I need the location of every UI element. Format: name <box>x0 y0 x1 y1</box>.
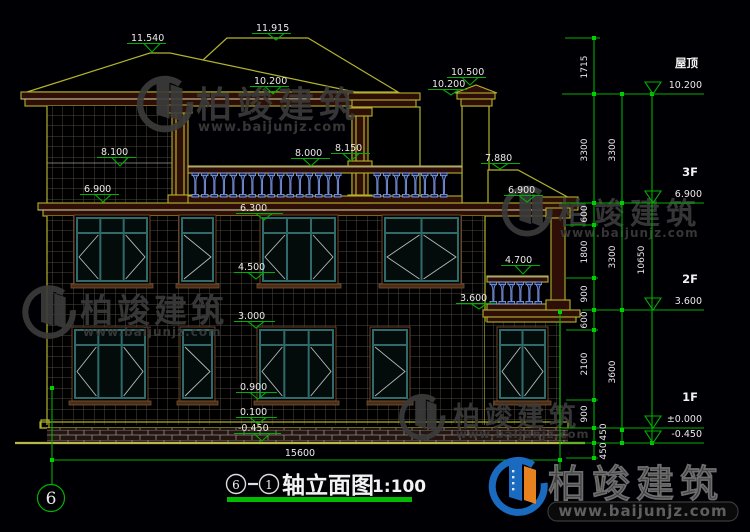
third-floor-band <box>38 203 578 216</box>
dimension-value: 1715 <box>580 56 590 79</box>
baluster <box>287 173 294 197</box>
dimension-tick <box>620 92 624 96</box>
logo-building-icon <box>509 459 522 501</box>
dimension-value: 450 <box>599 423 609 440</box>
dimension-value: 900 <box>580 405 590 422</box>
floor-elevation: -0.450 <box>671 429 702 440</box>
dimension-tick <box>592 36 596 40</box>
baluster <box>221 173 228 197</box>
dimension-value: 600 <box>580 311 590 328</box>
baluster <box>316 173 323 197</box>
drawing-title: 6 1 轴立面图 1:100 <box>227 472 427 502</box>
baluster <box>202 173 209 197</box>
window <box>367 327 413 405</box>
cad-elevation-screenshot: 柏竣建筑 www.baijunjz.com 柏竣建筑 www.baijunjz.… <box>0 0 750 532</box>
baluster <box>259 173 266 197</box>
dimension-tick <box>592 441 596 445</box>
dimension-value: 3300 <box>608 245 618 268</box>
floor-elevation: 6.900 <box>675 189 702 200</box>
floor-name: 2F <box>682 272 698 286</box>
dimension-tick <box>592 223 596 227</box>
floor-name: 3F <box>682 165 698 179</box>
dimension-value: 900 <box>580 285 590 302</box>
dimension-value: 3300 <box>608 138 618 161</box>
dimension-tick <box>620 201 624 205</box>
watermark-url: www.baijunjz.com <box>560 226 699 240</box>
baluster <box>278 173 285 197</box>
title-text: 轴立面图 <box>282 472 374 499</box>
floor-level-markers: 屋顶10.2003F6.9002F3.6001F±0.000-0.450 <box>638 56 704 443</box>
floor-elevation: 10.200 <box>669 80 702 91</box>
elevation-value: 10.500 <box>451 67 484 78</box>
dimension-tick <box>592 201 596 205</box>
elevation-value: 3.000 <box>238 311 265 322</box>
elevation-value: 7.880 <box>485 153 512 164</box>
window <box>379 215 464 288</box>
dimension-tick <box>592 426 596 430</box>
dimension-tick <box>50 386 54 390</box>
window <box>494 327 551 405</box>
window-sill <box>177 401 218 405</box>
baluster <box>508 282 515 304</box>
dimension-tick <box>620 428 624 432</box>
elevation-value: 8.000 <box>295 148 322 159</box>
dimension-tick <box>592 308 596 312</box>
dimension-tick <box>592 328 596 332</box>
elevation-value: 6.900 <box>84 184 111 195</box>
baluster <box>335 173 342 197</box>
window <box>257 215 341 288</box>
baluster <box>230 173 237 197</box>
floor-elevation: ±0.000 <box>667 414 702 425</box>
baluster <box>517 282 524 304</box>
title-axis-to: 1 <box>265 478 273 492</box>
elevation-value: 10.200 <box>432 79 465 90</box>
baluster <box>431 173 438 197</box>
dimension-value: 450 <box>599 442 609 459</box>
elevation-value: 6.900 <box>508 185 535 196</box>
baluster <box>422 173 429 197</box>
elevation-value: 10.200 <box>254 76 287 87</box>
floor-elevation: 3.600 <box>675 296 702 307</box>
elevation-value: 8.100 <box>101 147 128 158</box>
window-sill <box>254 401 339 405</box>
elevation-value: 3.600 <box>460 293 487 304</box>
elevation-marker: 4.700 <box>501 255 540 274</box>
logo-brand-text: 柏竣建筑 <box>548 462 724 506</box>
baluster <box>192 173 199 197</box>
baluster <box>297 173 304 197</box>
baluster <box>240 173 247 197</box>
window <box>254 327 339 405</box>
window-sill <box>379 284 464 288</box>
elevation-value: 8.150 <box>335 143 362 154</box>
dimension-tick <box>592 276 596 280</box>
window <box>176 215 219 288</box>
elevation-marker: 11.540 <box>127 33 166 52</box>
watermark-url: www.baijunjz.com <box>83 325 222 339</box>
window-sill <box>257 284 341 288</box>
title-axis-from: 6 <box>232 478 240 492</box>
watermark: 柏竣建筑 www.baijunjz.com <box>402 396 590 441</box>
elevation-value: 11.915 <box>256 23 289 34</box>
dimension-tick <box>592 92 596 96</box>
axis-bubble-number: 6 <box>46 489 57 509</box>
baluster <box>249 173 256 197</box>
dimension-value: 2100 <box>580 352 590 375</box>
elevation-value: 0.100 <box>240 407 267 418</box>
floor-name: 1F <box>682 390 698 404</box>
baluster <box>526 282 533 304</box>
dimension-value: 10650 <box>637 245 647 274</box>
axis-bubble: 6 <box>38 485 65 512</box>
window-sill <box>69 401 151 405</box>
dimension-tick <box>620 441 624 445</box>
dimension-tick <box>592 398 596 402</box>
watermark-url: www.baijunjz.com <box>456 427 589 441</box>
baluster <box>268 173 275 197</box>
baluster <box>211 173 218 197</box>
floor-level-marker: 屋顶10.200 <box>638 56 704 94</box>
floor-level-marker: -0.450 <box>638 429 704 443</box>
title-scale: 1:100 <box>372 477 426 497</box>
elevation-value: 6.300 <box>240 203 267 214</box>
baluster <box>306 173 313 197</box>
dimension-tick <box>592 456 596 460</box>
dimension-value: 600 <box>580 205 590 222</box>
elevation-value: -0.450 <box>238 423 269 434</box>
dimension-value: 3300 <box>580 138 590 161</box>
overall-width-value: 15600 <box>285 448 315 459</box>
baluster <box>535 282 542 304</box>
window-sill <box>176 284 219 288</box>
company-logo: 柏竣建筑 www.baijunjz.com <box>492 459 738 521</box>
window-sill <box>71 284 153 288</box>
watermark-url: www.baijunjz.com <box>198 120 347 135</box>
dimension-texts: 1715330060018009006002100900450450330033… <box>580 56 647 460</box>
elevation-value: 11.540 <box>131 33 164 44</box>
baluster <box>499 282 506 304</box>
window <box>71 215 153 288</box>
dimension-tick <box>558 310 562 314</box>
baluster <box>490 282 497 304</box>
baluster <box>441 173 448 197</box>
dimension-value: 3600 <box>608 360 618 383</box>
dimension-tick <box>50 458 54 462</box>
baluster <box>325 173 332 197</box>
elevation-marker: 8.000 <box>291 148 330 166</box>
elevation-value: 0.900 <box>240 382 267 393</box>
elevation-value: 4.500 <box>238 262 265 273</box>
title-underline <box>227 497 412 502</box>
elevation-value: 4.700 <box>505 255 532 266</box>
floor-level-marker: 2F3.600 <box>638 272 704 310</box>
floor-name: 屋顶 <box>675 56 698 70</box>
logo-url-text: www.baijunjz.com <box>558 502 727 520</box>
floor-level-marker: 1F±0.000 <box>638 390 704 428</box>
dimension-tick <box>620 308 624 312</box>
dimension-value: 1800 <box>580 240 590 263</box>
